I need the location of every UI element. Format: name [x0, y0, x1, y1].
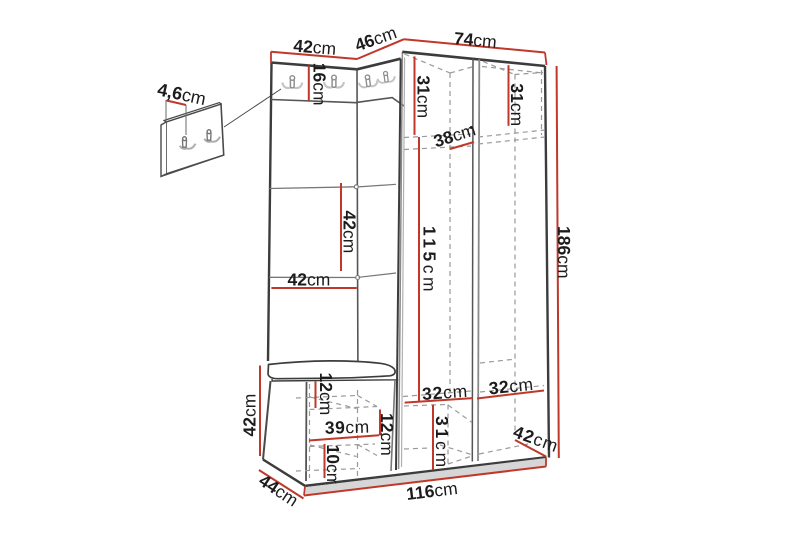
svg-text:16cm: 16cm [310, 63, 330, 106]
svg-text:12cm: 12cm [377, 413, 397, 456]
svg-text:31cm: 31cm [507, 83, 527, 126]
svg-text:115cm: 115cm [420, 226, 440, 295]
svg-text:31cm: 31cm [432, 416, 452, 470]
svg-text:186cm: 186cm [554, 226, 574, 279]
svg-text:12cm: 12cm [316, 373, 336, 416]
svg-text:74cm: 74cm [453, 28, 497, 52]
svg-text:42cm: 42cm [288, 269, 331, 289]
svg-text:42cm: 42cm [293, 36, 337, 59]
svg-text:42cm: 42cm [340, 211, 360, 254]
svg-text:42cm: 42cm [240, 394, 260, 437]
svg-text:10cm: 10cm [323, 445, 343, 488]
svg-text:32cm: 32cm [421, 381, 468, 404]
svg-text:39cm: 39cm [325, 417, 370, 438]
svg-text:31cm: 31cm [414, 75, 434, 118]
